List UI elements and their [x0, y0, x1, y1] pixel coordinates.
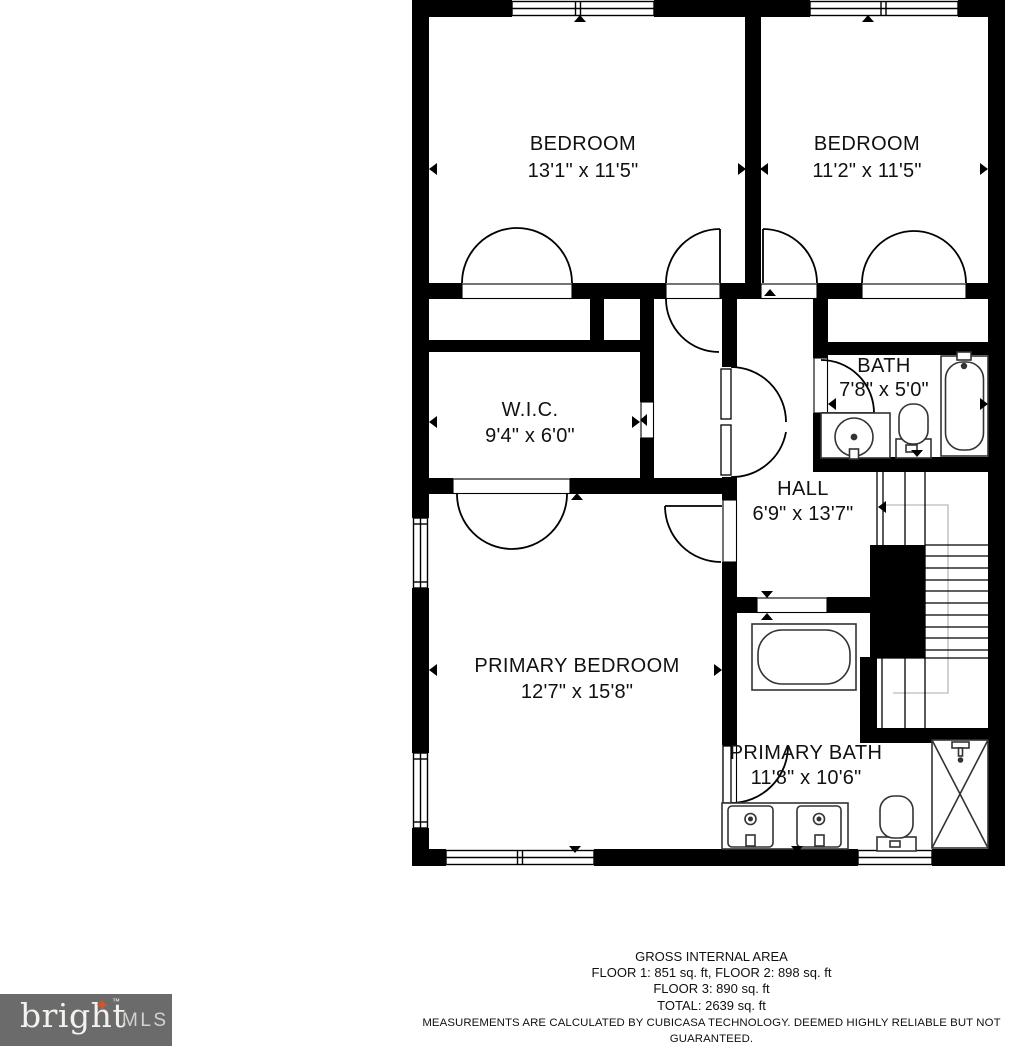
- toilet-icon: [896, 404, 931, 458]
- logo-brand-text: bright: [20, 996, 126, 1035]
- window-primary-bath-bottom: [858, 851, 932, 865]
- gross-internal-area-summary: GROSS INTERNAL AREA FLOOR 1: 851 sq. ft,…: [418, 949, 1005, 1047]
- closet-double-door-primary: [457, 494, 567, 549]
- logo-suffix-text: MLS: [122, 1010, 169, 1032]
- room-dims: 11'2" x 11'5": [812, 160, 921, 182]
- trademark-symbol: ™: [112, 997, 120, 1006]
- window-primary-bedroom-bottom: [446, 851, 594, 865]
- closet-double-door-bedroom1: [462, 228, 572, 283]
- room-label-primary-bedroom: PRIMARY BEDROOM 12'7" x 15'8": [474, 655, 679, 703]
- door-wic-vestibule: [666, 299, 719, 352]
- room-name: PRIMARY BATH: [730, 742, 883, 764]
- room-label-hall: HALL 6'9" x 13'7": [753, 478, 854, 525]
- staircase: [870, 472, 988, 728]
- door-bedroom2: [763, 229, 817, 283]
- room-name: BEDROOM: [530, 133, 636, 155]
- room-name: PRIMARY BEDROOM: [474, 655, 679, 677]
- room-dims: 12'7" x 15'8": [521, 681, 633, 703]
- window-bedroom2-top: [810, 2, 958, 16]
- window-primary-bedroom-left-1: [414, 518, 428, 588]
- area-floor-3: FLOOR 3: 890 sq. ft: [418, 981, 1005, 997]
- toilet-icon: [877, 796, 916, 851]
- stairs-solid-block: [870, 545, 925, 658]
- closet-double-door-bedroom2: [862, 231, 966, 283]
- measurement-disclaimer: MEASUREMENTS ARE CALCULATED BY CUBICASA …: [418, 1015, 1005, 1047]
- window-primary-bedroom-left-2: [414, 753, 428, 828]
- bright-mls-logo: bright ✦ ™ MLS: [0, 994, 172, 1046]
- freestanding-tub-icon: [752, 624, 856, 690]
- area-floor-1-2: FLOOR 1: 851 sq. ft, FLOOR 2: 898 sq. ft: [418, 965, 1005, 981]
- doors: [457, 228, 966, 803]
- room-label-bath: BATH 7'8" x 5'0": [839, 355, 929, 401]
- room-label-bedroom-2: BEDROOM 11'2" x 11'5": [812, 133, 921, 182]
- floor-plan-drawing: BEDROOM 13'1" x 11'5" BEDROOM 11'2" x 11…: [0, 0, 1013, 1046]
- shower-icon: [932, 740, 988, 848]
- room-name: BATH: [857, 355, 910, 377]
- room-name: W.I.C.: [502, 399, 559, 421]
- double-swing-door-hall: [721, 367, 786, 477]
- room-name: HALL: [777, 478, 829, 500]
- double-vanity-icon: [722, 803, 848, 849]
- room-name: BEDROOM: [814, 133, 920, 155]
- door-bedroom1: [666, 229, 720, 283]
- room-dims: 11'8" x 10'6": [751, 767, 862, 789]
- floor-plan-page: BEDROOM 13'1" x 11'5" BEDROOM 11'2" x 11…: [0, 0, 1013, 1046]
- door-primary-bedroom: [665, 506, 722, 562]
- room-dims: 13'1" x 11'5": [528, 160, 639, 182]
- room-label-bedroom-1: BEDROOM 13'1" x 11'5": [528, 133, 639, 182]
- room-dims: 6'9" x 13'7": [753, 503, 854, 525]
- room-dims: 7'8" x 5'0": [839, 379, 929, 401]
- room-label-primary-bath: PRIMARY BATH 11'8" x 10'6": [730, 742, 883, 789]
- room-label-wic: W.I.C. 9'4" x 6'0": [485, 399, 575, 447]
- room-dims: 9'4" x 6'0": [485, 425, 575, 447]
- window-bedroom1-top: [512, 2, 654, 16]
- area-title: GROSS INTERNAL AREA: [418, 949, 1005, 965]
- area-total: TOTAL: 2639 sq. ft: [418, 998, 1005, 1014]
- star-icon: ✦: [95, 997, 109, 1014]
- vanity-sink-icon: [821, 413, 890, 459]
